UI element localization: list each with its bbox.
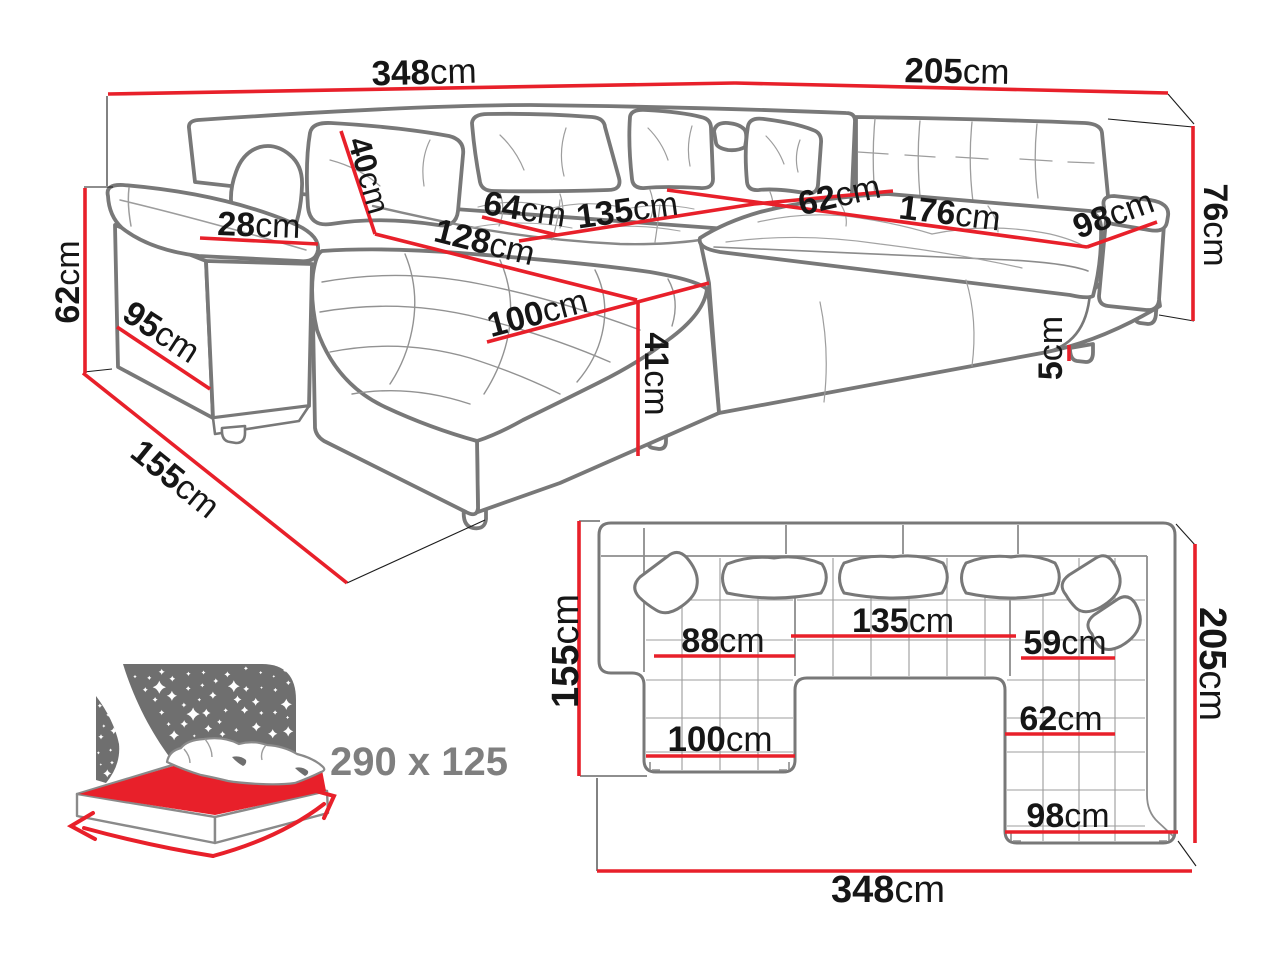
svg-text:5cm: 5cm bbox=[1032, 316, 1070, 380]
svg-text:155cm: 155cm bbox=[545, 594, 587, 708]
svg-text:100cm: 100cm bbox=[667, 720, 772, 759]
svg-text:205cm: 205cm bbox=[1191, 607, 1233, 721]
svg-text:76cm: 76cm bbox=[1196, 183, 1234, 266]
svg-text:290 x 125: 290 x 125 bbox=[330, 740, 508, 784]
svg-text:62cm: 62cm bbox=[1019, 700, 1102, 738]
svg-text:348cm: 348cm bbox=[371, 52, 477, 94]
svg-text:41cm: 41cm bbox=[637, 332, 675, 415]
svg-text:88cm: 88cm bbox=[681, 622, 764, 660]
svg-text:135cm: 135cm bbox=[852, 602, 954, 640]
svg-text:62cm: 62cm bbox=[49, 240, 87, 323]
svg-text:28cm: 28cm bbox=[217, 205, 301, 246]
svg-text:98cm: 98cm bbox=[1026, 797, 1109, 835]
svg-text:59cm: 59cm bbox=[1023, 624, 1106, 662]
svg-text:205cm: 205cm bbox=[904, 51, 1010, 92]
svg-text:348cm: 348cm bbox=[831, 869, 945, 911]
